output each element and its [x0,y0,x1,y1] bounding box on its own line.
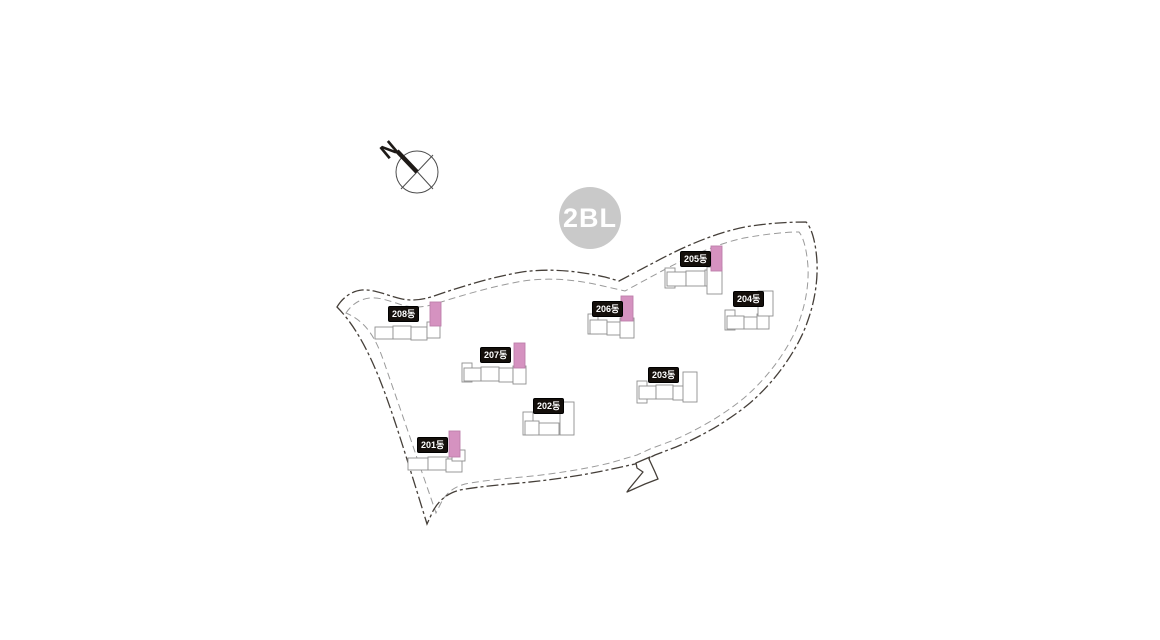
building-label-206동[interactable]: 206동 [592,301,623,317]
site-plan-svg: N [0,0,1160,640]
block-badge: 2BL [559,187,621,249]
building-unit [686,271,705,286]
compass: N [376,136,438,193]
compass-north-label: N [376,136,402,163]
building-unit [481,367,499,381]
highlighted-unit-bar [711,246,722,271]
highlighted-unit-bar [430,302,441,326]
building-unit [499,368,513,382]
building-unit [727,316,744,329]
site-plan-canvas: N 2BL 201동202동203동204동205동206동207동208동 [0,0,1160,640]
building-label-202동[interactable]: 202동 [533,398,564,414]
building-label-208동[interactable]: 208동 [388,306,419,322]
highlighted-unit-bar [449,431,460,457]
building-label-205동[interactable]: 205동 [680,251,711,267]
building-label-201동[interactable]: 201동 [417,437,448,453]
building-unit [513,366,526,384]
building-unit [393,326,411,339]
building-unit [539,423,559,435]
building-unit [408,458,428,470]
site-boundary-inner [346,232,808,513]
building-label-207동[interactable]: 207동 [480,347,511,363]
building-unit [428,457,448,470]
building-unit [375,327,393,339]
building-unit [656,385,673,399]
building-unit [683,372,697,402]
building-unit [667,272,686,286]
building-label-203동[interactable]: 203동 [648,367,679,383]
building-unit [639,386,656,399]
block-badge-label: 2BL [563,203,617,234]
building-label-204동[interactable]: 204동 [733,291,764,307]
site-boundary-outer [337,222,817,524]
building-unit [464,368,481,381]
building-unit [411,327,427,340]
building-unit [590,320,607,334]
highlighted-unit-bar [514,343,525,368]
site-entrance-funnel [627,457,658,492]
building-unit [525,421,539,435]
building-unit [673,386,684,400]
